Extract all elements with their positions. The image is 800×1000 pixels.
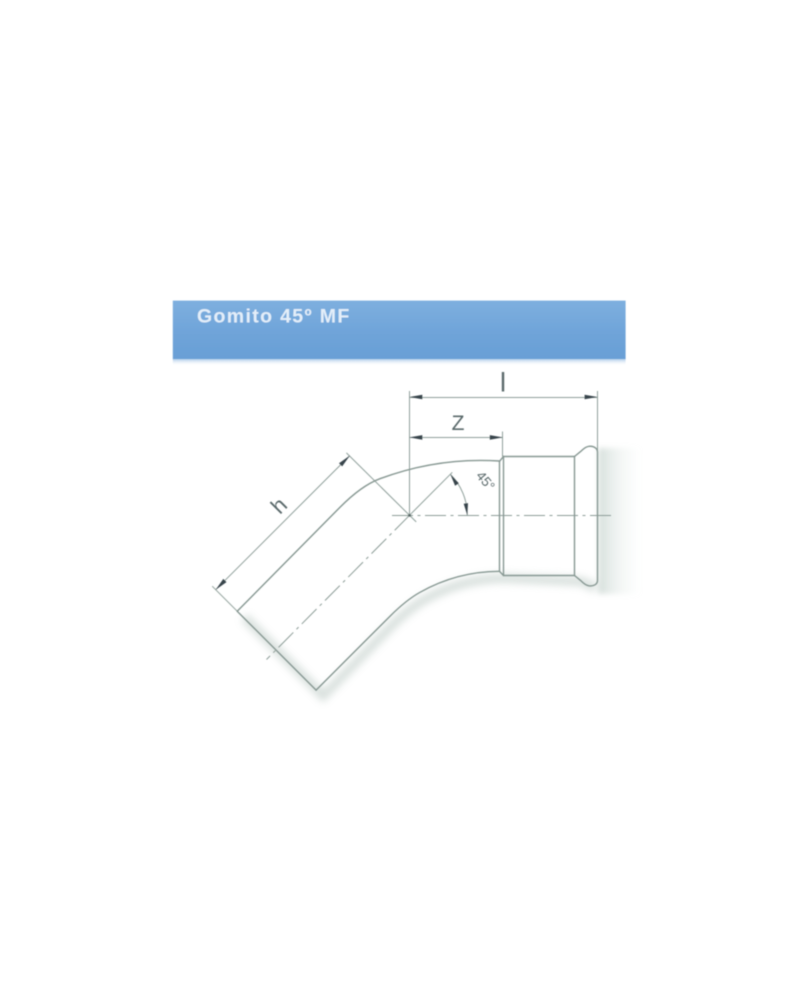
- svg-text:h: h: [266, 492, 292, 518]
- svg-text:Gomito 45º MF: Gomito 45º MF: [197, 306, 351, 328]
- svg-text:l: l: [500, 368, 506, 398]
- svg-text:Z: Z: [452, 412, 465, 435]
- svg-text:45°: 45°: [473, 468, 498, 493]
